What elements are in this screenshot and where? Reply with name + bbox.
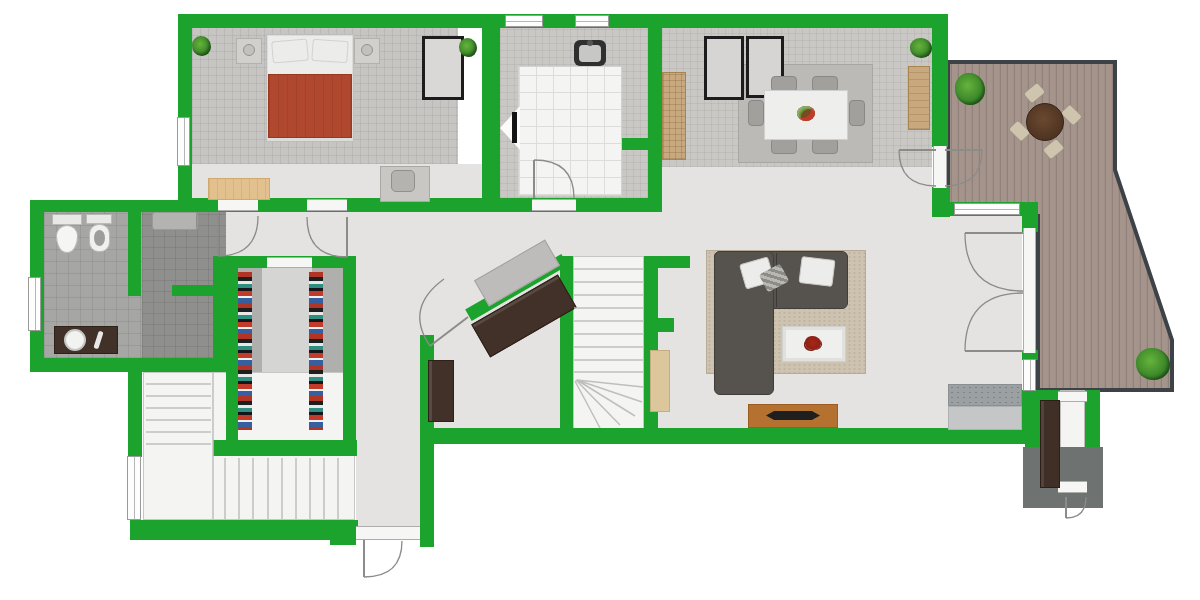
deck-door-arc-in	[899, 150, 936, 186]
annotation-layer	[0, 0, 1200, 600]
vestibule-door-arc	[1066, 497, 1086, 518]
stair-treads	[146, 269, 643, 519]
hall-right-door-arc	[307, 217, 347, 257]
entry-door-arc	[364, 541, 402, 577]
hall-left-door-arc	[218, 216, 258, 256]
floor-plan	[0, 0, 1200, 600]
kitchen-door-arc	[534, 160, 574, 198]
diagonal-hall-door-arc	[420, 279, 444, 346]
french-door-arc-top	[965, 233, 1023, 291]
french-door-arc-bottom	[965, 293, 1023, 351]
door-leaf	[430, 317, 468, 346]
deck-door-arc-out	[945, 150, 982, 186]
